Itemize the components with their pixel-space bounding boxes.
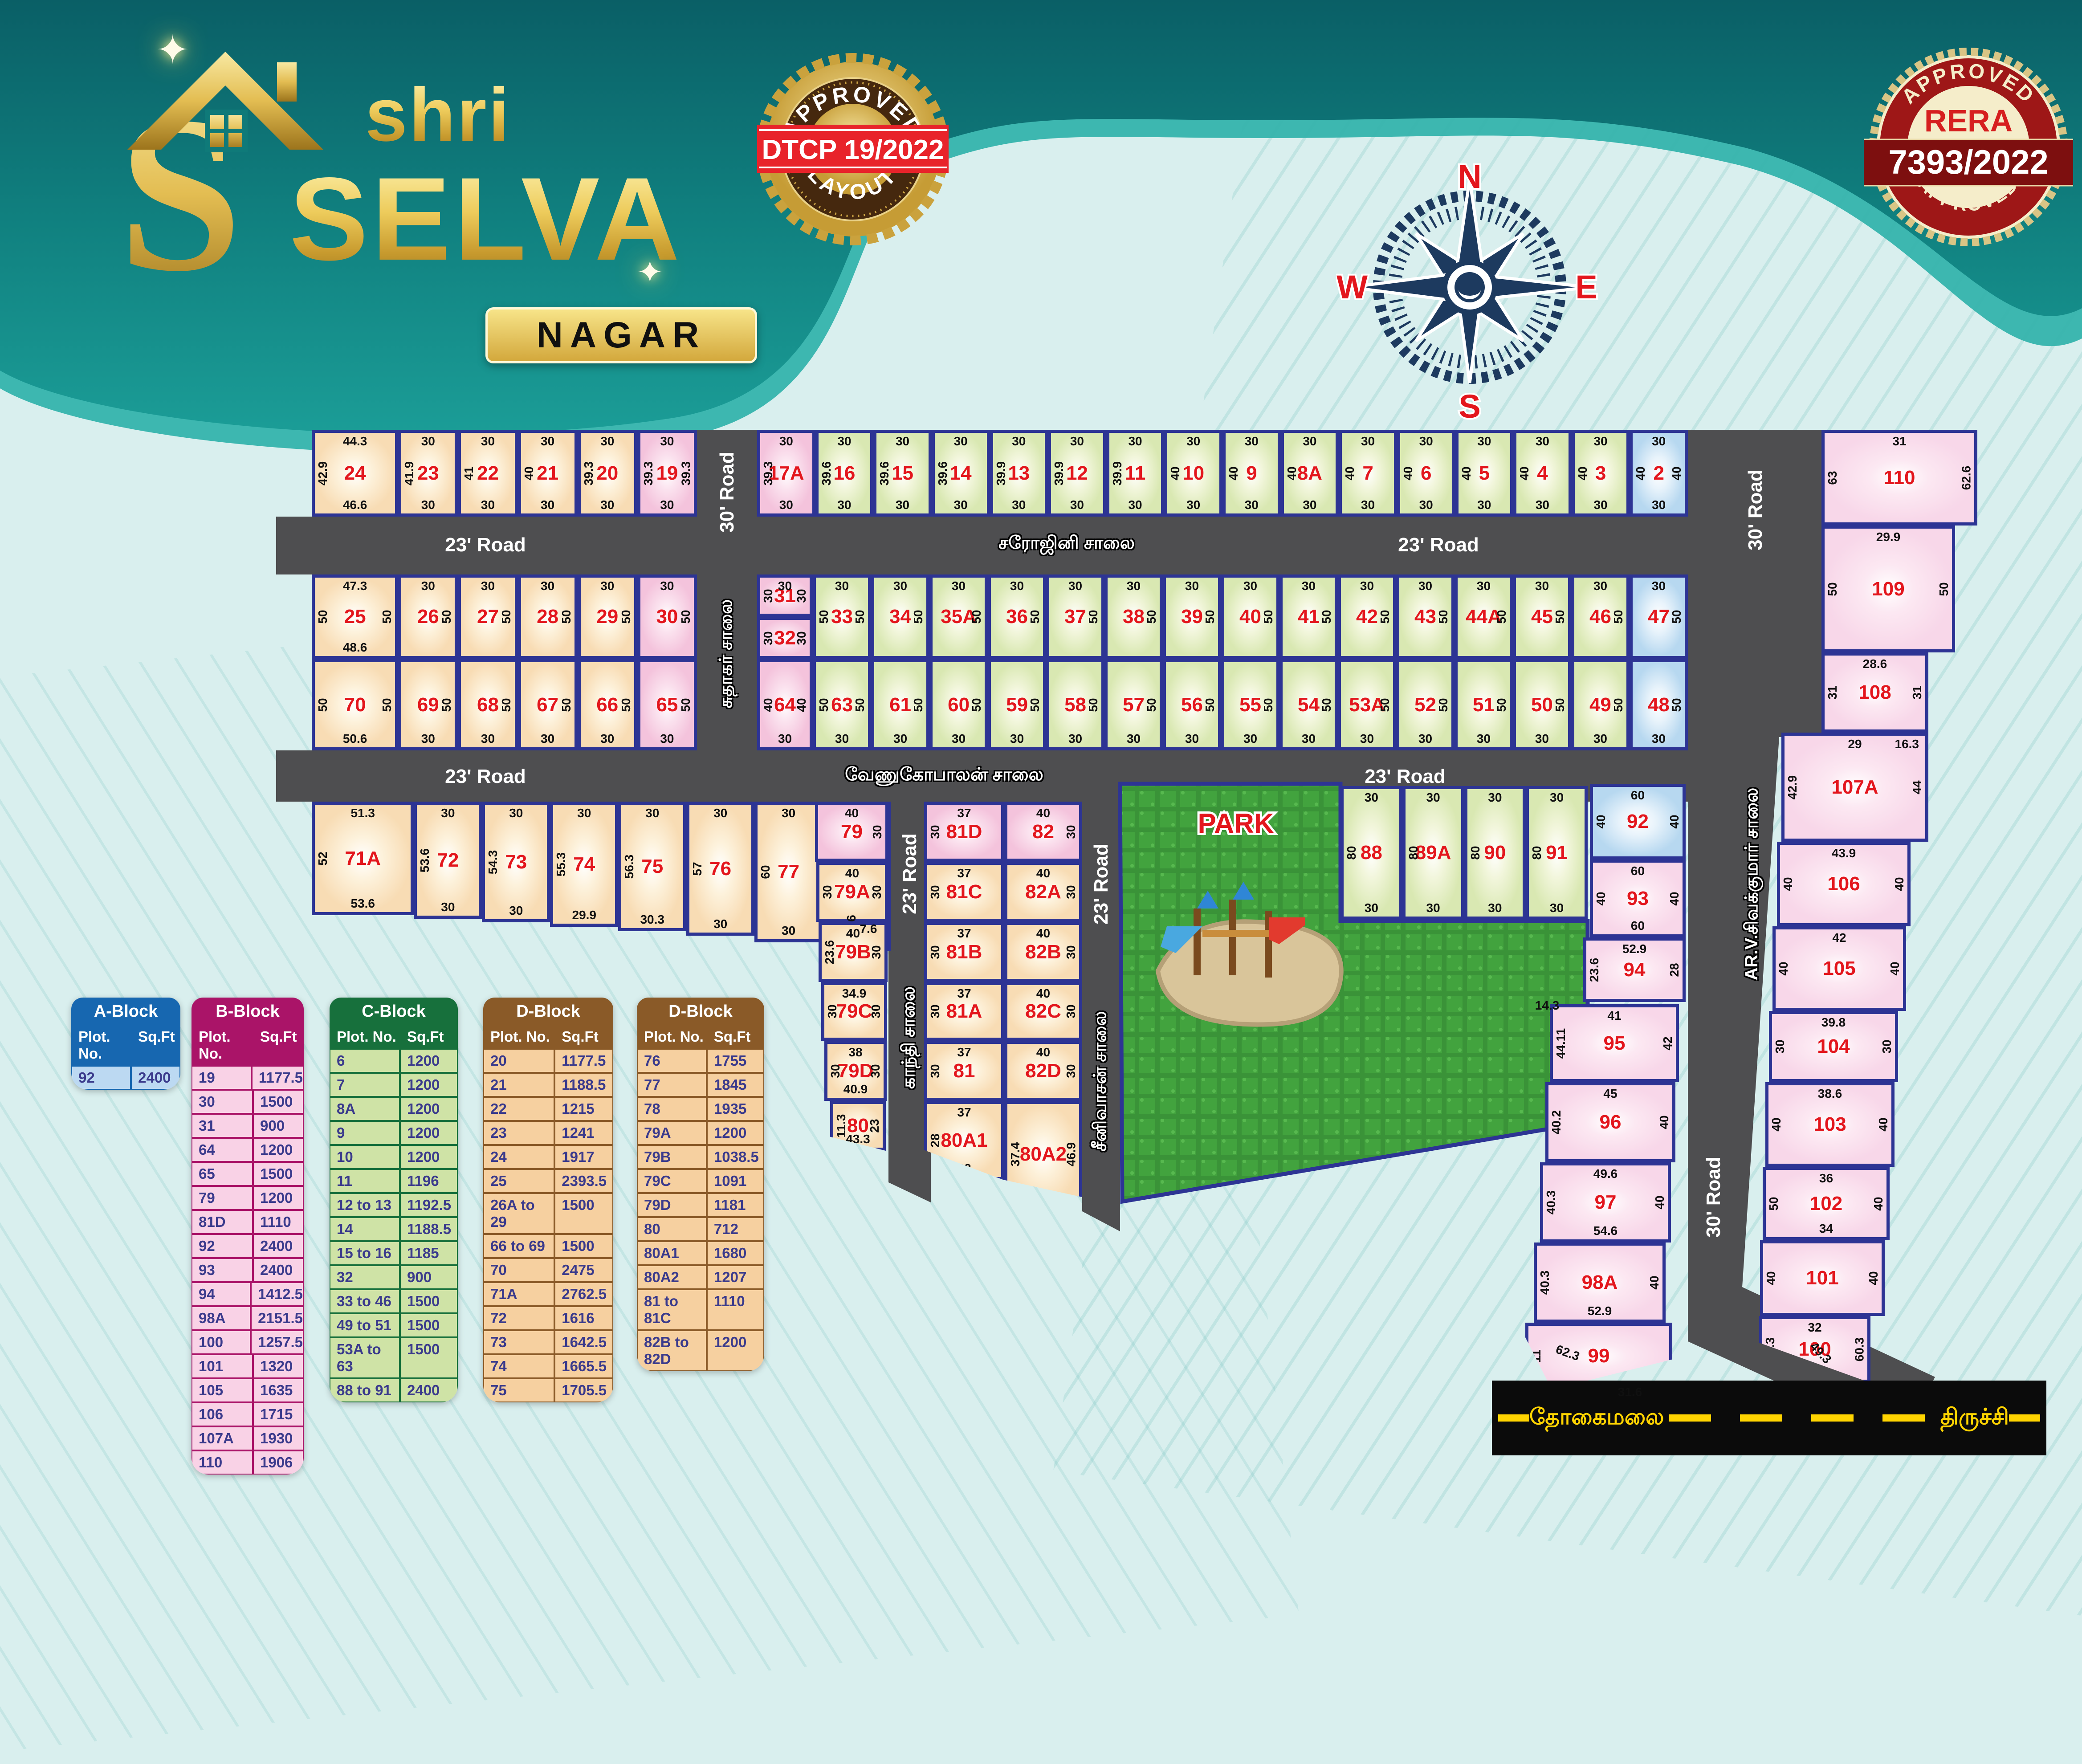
dim-bottom: 30 — [660, 499, 674, 511]
plot-number: 82C — [1025, 1000, 1061, 1023]
table-row: 33 to 461500 — [330, 1289, 458, 1313]
plot-2: 230304040 — [1630, 430, 1688, 517]
dim-bottom: 30 — [1243, 733, 1257, 745]
dim-top: 30 — [1535, 580, 1549, 592]
dim-left: 42.9 — [317, 461, 329, 485]
table-cell: 80 — [637, 1217, 707, 1241]
dim-left: 40 — [762, 698, 774, 712]
table-cell: 23 — [483, 1121, 554, 1145]
plot-number: 20 — [596, 462, 618, 485]
table-cell: 1906 — [253, 1450, 304, 1475]
dim-right: 50 — [1554, 610, 1566, 623]
dim-bottom: 30 — [1593, 499, 1607, 511]
table-cell: 1500 — [400, 1337, 458, 1378]
plot-11: 11303039.9 — [1106, 430, 1165, 517]
table-row: 761755 — [637, 1049, 764, 1073]
plot-71A: 71A51.353.652 — [312, 802, 414, 915]
dim-left: 40 — [1460, 466, 1473, 480]
plot-88: 88303080 — [1340, 786, 1402, 920]
plot-48: 483050 — [1630, 659, 1688, 750]
table-header-row: Plot. No.Sq.Ft — [191, 1025, 304, 1066]
dim-top: 40 — [1036, 927, 1050, 940]
plot-58: 583050 — [1046, 659, 1104, 750]
table-cell: 1038.5 — [707, 1145, 764, 1169]
table-cell: 79B — [637, 1145, 707, 1169]
dim-left: 57 — [691, 862, 704, 876]
plot-74: 743029.955.3 — [550, 802, 618, 927]
plot-number: 105 — [1823, 957, 1855, 980]
dim-left: 40 — [1595, 892, 1607, 905]
plot-33: 33305050 — [813, 574, 871, 659]
dim-bottom: 30 — [660, 733, 674, 745]
table-cell: 92 — [71, 1066, 131, 1090]
dim-top: 37 — [957, 1046, 971, 1059]
dim-right: 50 — [1145, 698, 1158, 712]
plot-number: 11 — [1125, 462, 1146, 485]
dim-top: 30 — [1303, 435, 1316, 448]
plot-number: 42 — [1356, 606, 1378, 628]
dim-right: 30 — [795, 589, 808, 603]
dim-bottom: 30 — [509, 904, 523, 917]
plot-14: 14303039.6 — [932, 430, 990, 517]
plot-57: 573050 — [1104, 659, 1163, 750]
dim-top: 47.3 — [343, 580, 367, 592]
table-cell: 66 to 69 — [483, 1234, 554, 1258]
dim-left: 40 — [1402, 466, 1414, 480]
dim-right: 40 — [1668, 815, 1681, 828]
plot-8A: 8A303040 — [1281, 430, 1339, 517]
table-cell: 1930 — [253, 1426, 304, 1450]
dim-right: 50 — [970, 610, 983, 623]
block-95-99: 954144.1142964540.2409749.654.640.34098A… — [1550, 1004, 1679, 1389]
dim-left: 23.6 — [1588, 957, 1601, 982]
table-cell: 1500 — [253, 1162, 304, 1186]
plot-82B: 82B4030 — [1004, 922, 1082, 982]
table-row: 922400 — [191, 1234, 304, 1258]
table-title: D-Block — [637, 998, 764, 1025]
plot-47: 473050 — [1630, 574, 1688, 659]
plot-60: 603050 — [929, 659, 988, 750]
plot-number: 80A1 — [941, 1129, 987, 1152]
dim-top: 30 — [1365, 791, 1378, 804]
dim-top: 30 — [577, 807, 591, 819]
plot-34: 343050 — [871, 574, 929, 659]
dim-top: 40 — [1036, 1046, 1050, 1059]
plot-number: 106 — [1827, 873, 1860, 895]
plot-81D: 81D3730 — [924, 802, 1004, 862]
table-row: 12 to 131192.5 — [330, 1193, 458, 1217]
table-cell: 1500 — [554, 1234, 613, 1258]
plot-number: 81A — [946, 1000, 982, 1023]
dim-left: 40 — [1782, 877, 1794, 891]
dim-right: 39.3 — [680, 461, 692, 485]
dim-bottom: 30 — [1185, 733, 1199, 745]
plot-42: 423050 — [1338, 574, 1396, 659]
plot-13: 13303039.9 — [990, 430, 1048, 517]
table-row: 79D1181 — [637, 1193, 764, 1217]
plot-65: 653050 — [637, 659, 697, 750]
plot-54: 543050 — [1279, 659, 1338, 750]
dim-left: 40 — [1595, 815, 1607, 828]
table-row: 32900 — [330, 1265, 458, 1289]
plot-number: 69 — [417, 694, 439, 716]
dim-bottom: 30 — [1068, 733, 1082, 745]
plot-79C: 79C34.93030 — [821, 982, 887, 1041]
table-row: 791200 — [191, 1186, 304, 1210]
dim-top: 37 — [957, 927, 971, 940]
road-label: 30' Road — [716, 452, 738, 533]
table-cell: 79A — [637, 1121, 707, 1145]
plot-26: 263050 — [398, 574, 458, 659]
plot-63: 63305050 — [813, 659, 871, 750]
dim-left: 23.6 — [823, 940, 836, 964]
dim-bottom: 30 — [1303, 499, 1316, 511]
table-row: 71A2762.5 — [483, 1282, 613, 1306]
table-cell: 110 — [191, 1450, 253, 1475]
plot-number: 79A — [834, 881, 870, 903]
table-cell: 1200 — [400, 1073, 458, 1097]
dim-right: 40 — [1668, 892, 1681, 905]
table-cell: 1200 — [400, 1049, 458, 1073]
plot-number: 104 — [1817, 1035, 1850, 1058]
table-cell: 14 — [330, 1217, 400, 1241]
plot-106: 10643.94040 — [1777, 842, 1911, 926]
plot-number: 14 — [950, 462, 972, 485]
dim-bottom: 30 — [1360, 733, 1374, 745]
dim-right: 50 — [1204, 698, 1216, 712]
dim-top: 30 — [1127, 580, 1141, 592]
table-row: 721616 — [483, 1306, 613, 1330]
table-cell: 1200 — [707, 1330, 764, 1371]
road-label: 30' Road — [1703, 1157, 1725, 1238]
dim-top: 36 — [1819, 1172, 1833, 1185]
dim-right: 30 — [1065, 1004, 1077, 1018]
table-cell: 1642.5 — [554, 1330, 613, 1354]
dim-bottom: 30 — [1652, 499, 1666, 511]
table-cell: 74 — [483, 1354, 554, 1378]
table-cell: 88 to 91 — [330, 1378, 400, 1402]
dim-top: 51.3 — [350, 807, 375, 819]
dim-left: 52 — [317, 851, 329, 865]
table-row: 141188.5 — [330, 1217, 458, 1241]
dim-top: 30 — [1652, 435, 1666, 448]
dim-bottom: 30 — [1477, 499, 1491, 511]
table-cell: 1215 — [554, 1097, 613, 1121]
plot-number: 8A — [1297, 462, 1322, 485]
plot-number: 94 — [1624, 959, 1646, 981]
sparkle-icon: ✦ — [637, 254, 663, 290]
table-row: 731642.5 — [483, 1330, 613, 1354]
plot-number: 3 — [1595, 462, 1606, 485]
dim-bottom: 54.6 — [1593, 1225, 1618, 1237]
table-title: D-Block — [483, 998, 613, 1025]
plot-number: 13 — [1008, 462, 1030, 485]
dim-right: 50 — [1437, 610, 1450, 623]
table-row: 79C1091 — [637, 1169, 764, 1193]
plot-number: 7 — [1362, 462, 1373, 485]
dim-left: 40.2 — [1550, 1110, 1563, 1135]
dim-right: 60.3 — [1853, 1337, 1866, 1362]
plot-80A1: 80A1373828 — [924, 1101, 1004, 1180]
dim-bottom: 30 — [1418, 733, 1432, 745]
table-cell: 30 — [191, 1090, 253, 1114]
table-cell: 1200 — [707, 1121, 764, 1145]
dim-left: 39.3 — [642, 461, 655, 485]
dim-bottom: 30 — [541, 499, 554, 511]
plot-97: 9749.654.640.340 — [1540, 1162, 1671, 1243]
dim-left: 30 — [929, 945, 941, 959]
dim-right: 50 — [1320, 610, 1333, 623]
dim-left: 53.6 — [419, 848, 431, 872]
dim-bottom: 30 — [778, 733, 792, 745]
dim-top: 30 — [1536, 435, 1549, 448]
plot-number: 61 — [889, 694, 911, 716]
block-right-column: 110316362.610929.9505010828.63131107A291… — [1759, 430, 1982, 1383]
plot-number: 68 — [477, 694, 499, 716]
dim-top: 42 — [1832, 932, 1846, 944]
plot-99: 9911 — [1525, 1323, 1672, 1389]
dim-left: 41 — [463, 466, 475, 480]
dim-left: 30 — [762, 631, 774, 645]
dim-float-label: 31.6 — [1618, 1385, 1642, 1399]
dim-right: 30 — [871, 885, 883, 899]
dim-right: 50 — [1029, 698, 1041, 712]
table-cell: 1192.5 — [400, 1193, 458, 1217]
table-header-cell: Plot. No. — [71, 1025, 131, 1066]
table-cell: 82B to 82D — [637, 1330, 707, 1371]
table-cell: 2400 — [400, 1378, 458, 1402]
plot-108: 10828.63131 — [1821, 652, 1928, 733]
dim-bottom: 46.6 — [343, 499, 367, 511]
plot-number: 26 — [417, 606, 439, 628]
table-cell: 26A to 29 — [483, 1193, 554, 1234]
plot-number: 56 — [1181, 694, 1203, 716]
dim-left: 44.11 — [1555, 1028, 1567, 1059]
dim-right: 50 — [1087, 610, 1100, 623]
plot-number: 33 — [831, 606, 853, 628]
plot-number: 59 — [1006, 694, 1028, 716]
table-cell: 1196 — [400, 1169, 458, 1193]
dim-bottom: 30 — [1010, 733, 1024, 745]
plot-45: 453050 — [1513, 574, 1571, 659]
dim-top: 32 — [1808, 1321, 1821, 1334]
table-cell: 11 — [330, 1169, 400, 1193]
plot-number: 25 — [344, 606, 366, 628]
dim-float-label: 7.6 — [860, 922, 877, 936]
road-dash — [1669, 1414, 1936, 1422]
dim-right: 30 — [1065, 885, 1077, 899]
table-cell: 33 to 46 — [330, 1289, 400, 1313]
brand-subtitle: NAGAR — [537, 314, 706, 356]
dim-left: 40 — [1286, 466, 1298, 480]
dim-top: 31 — [1892, 435, 1906, 448]
table-cell: 1845 — [707, 1073, 764, 1097]
table-cell: 8A — [330, 1097, 400, 1121]
plot-number: 38 — [1123, 606, 1145, 628]
table-cell: 12 to 13 — [330, 1193, 400, 1217]
dim-right: 50 — [1379, 698, 1391, 712]
table-cell: 900 — [400, 1265, 458, 1289]
dim-right: 30 — [1881, 1039, 1893, 1053]
dim-bottom: 30 — [1419, 499, 1433, 511]
table-header-cell: Plot. No. — [483, 1025, 554, 1049]
plot-number: 50 — [1531, 694, 1553, 716]
dim-float-label: 14.3 — [1535, 998, 1560, 1013]
dim-top: 30 — [660, 580, 674, 592]
table-cell: 1200 — [400, 1097, 458, 1121]
table-cell: 53A to 63 — [330, 1337, 400, 1378]
plot-24: 2444.346.642.9 — [312, 430, 398, 517]
plot-number: 92 — [1627, 811, 1649, 833]
plot-17A: 17A303039.3 — [757, 430, 815, 517]
dim-bottom: 30 — [421, 733, 435, 745]
dim-top: 30 — [1550, 791, 1564, 804]
dim-bottom: 43.3 — [846, 1133, 870, 1145]
dim-bottom: 30 — [837, 499, 851, 511]
plot-12: 12303039.9 — [1048, 430, 1106, 517]
road-label: 23' Road — [1090, 843, 1112, 925]
table-row: 81D1110 — [191, 1210, 304, 1234]
dim-bottom: 30 — [441, 901, 455, 913]
dim-left: 41.9 — [403, 461, 416, 485]
table-row: 191177.5 — [191, 1066, 304, 1090]
dim-right: 50 — [680, 610, 692, 623]
plot-number: 51 — [1473, 694, 1495, 716]
table-cell: 92 — [191, 1234, 253, 1258]
dim-right: 50 — [1612, 698, 1625, 712]
plot-37: 373050 — [1046, 574, 1104, 659]
dim-right: 50 — [381, 698, 393, 712]
table-header-cell: Plot. No. — [637, 1025, 707, 1049]
table-row: 15 to 161185 — [330, 1241, 458, 1265]
dtcp-number: DTCP 19/2022 — [762, 134, 944, 165]
dim-right: 42 — [1662, 1036, 1674, 1050]
plot-number: 103 — [1813, 1113, 1846, 1136]
table-cell: 79C — [637, 1169, 707, 1193]
table-cell: 1200 — [400, 1145, 458, 1169]
dim-top: 30 — [1593, 580, 1607, 592]
plot-104: 10439.83030 — [1769, 1011, 1898, 1082]
dim-bottom: 38 — [957, 1162, 971, 1175]
dim-left: 50 — [317, 698, 329, 712]
dim-left: 39.6 — [820, 461, 833, 485]
dim-left: 40 — [1227, 466, 1240, 480]
table-header-cell: Sq.Ft — [253, 1025, 304, 1066]
dim-top: 30 — [1477, 435, 1491, 448]
table-row: 241917 — [483, 1145, 613, 1169]
table-row: 301500 — [191, 1090, 304, 1114]
plot-number: 34 — [889, 606, 911, 628]
road-label: சரோஜினி சாலை — [998, 533, 1135, 555]
rera-approval-seal: APPROVED APPROVED RERA 7393/2022 — [1864, 38, 2073, 252]
plot-number: 54 — [1298, 694, 1320, 716]
table-row: 80A21207 — [637, 1265, 764, 1289]
dim-bottom: 40.9 — [843, 1083, 868, 1096]
dim-bottom: 30 — [1593, 733, 1607, 745]
table-cell: 79D — [637, 1193, 707, 1217]
dim-right: 50 — [1938, 582, 1950, 596]
road-label: 23' Road — [899, 833, 921, 914]
dim-left: 39.9 — [1111, 461, 1124, 485]
plot-21: 21303040 — [518, 430, 578, 517]
table-cell: 1185 — [400, 1241, 458, 1265]
plot-number: 12 — [1066, 462, 1088, 485]
dim-bottom: 30 — [1127, 733, 1141, 745]
dim-bottom: 30 — [600, 499, 614, 511]
plot-77: 77303060 — [754, 802, 823, 942]
dim-top: 30 — [441, 807, 455, 819]
table-cell: 10 — [330, 1145, 400, 1169]
dim-top: 30 — [896, 435, 909, 448]
table-row: 81 to 81C1110 — [637, 1289, 764, 1330]
dim-top: 28.6 — [1863, 658, 1887, 670]
plot-number: 82 — [1032, 821, 1054, 843]
table-cell: 2393.5 — [554, 1169, 613, 1193]
table-cell: 1110 — [707, 1289, 764, 1330]
table-a-block: A-BlockPlot. No.Sq.Ft922400 — [71, 998, 180, 1090]
dim-bottom: 50.6 — [343, 733, 367, 745]
dim-left: 80 — [1469, 846, 1482, 860]
dim-bottom: 30 — [600, 733, 614, 745]
dim-right: 30 — [1065, 825, 1077, 839]
dim-left: 28 — [929, 1133, 941, 1147]
plot-number: 47 — [1648, 606, 1670, 628]
dim-right: 50 — [1262, 698, 1275, 712]
plot-number: 23 — [417, 462, 439, 485]
plot-81B: 81B3730 — [924, 922, 1004, 982]
dim-bottom: 30 — [779, 499, 793, 511]
dim-top: 30 — [893, 580, 907, 592]
dim-top: 30 — [481, 435, 495, 448]
table-cell: 79 — [191, 1186, 253, 1210]
plot-number: 98A — [1582, 1271, 1618, 1294]
table-cell: 22 — [483, 1097, 554, 1121]
dim-top: 30 — [1360, 580, 1374, 592]
road-dash — [2009, 1414, 2040, 1422]
plot-76: 76303057 — [686, 802, 754, 936]
dim-right: 30 — [870, 1004, 882, 1018]
plot-4: 4303040 — [1513, 430, 1572, 517]
dim-bottom: 30 — [893, 733, 907, 745]
plot-96: 964540.240 — [1545, 1082, 1675, 1162]
dim-right: 50 — [381, 610, 393, 623]
dim-right: 30 — [1065, 945, 1077, 959]
block-row1-left: 2444.346.642.923303041.92230304121303040… — [312, 430, 697, 517]
plot-number: 22 — [477, 462, 499, 485]
table-cell: 1091 — [707, 1169, 764, 1193]
table-header-row: Plot. No.Sq.Ft — [483, 1025, 613, 1049]
dim-left: 55.3 — [555, 852, 567, 876]
dim-top: 30 — [541, 580, 554, 592]
dim-top: 30 — [509, 807, 523, 819]
block-88-91: 8830308089A3030809030308091303080 — [1340, 786, 1588, 920]
plot-number: 2 — [1653, 462, 1664, 485]
dim-bottom: 48.6 — [343, 641, 367, 654]
dim-bottom: 30 — [481, 733, 495, 745]
dim-top: 40 — [1036, 987, 1050, 1000]
dim-top: 41 — [1607, 1010, 1621, 1022]
dim-top: 30 — [1186, 435, 1200, 448]
table-row: 53A to 631500 — [330, 1337, 458, 1378]
plot-number: 81 — [953, 1060, 975, 1082]
dim-right: 40 — [1658, 1115, 1670, 1129]
plot-number: 32 — [774, 627, 796, 649]
road-label: 23' Road — [445, 766, 526, 788]
plot-7: 7303040 — [1339, 430, 1397, 517]
table-row: 80A11680 — [637, 1241, 764, 1265]
table-row: 71200 — [330, 1073, 458, 1097]
table-row: 702475 — [483, 1258, 613, 1282]
